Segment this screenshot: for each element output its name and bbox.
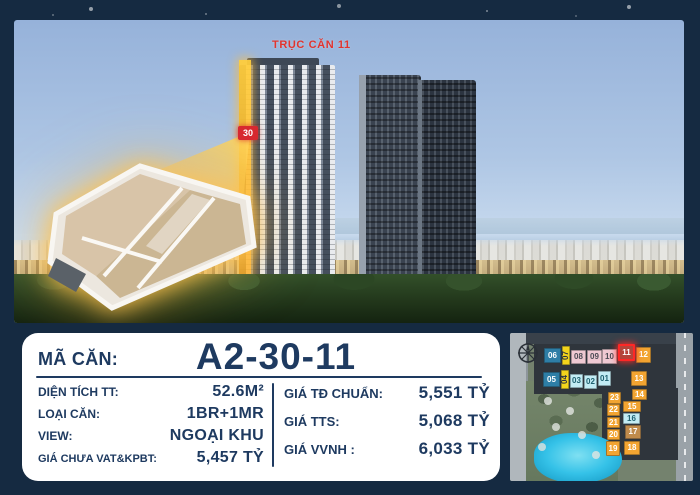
night-sky-stars: [0, 0, 2, 2]
map-unit-01: 01: [598, 371, 611, 386]
map-unit-14: 14: [632, 389, 647, 400]
vertical-divider: [272, 383, 274, 467]
spec-row-price-novat: GIÁ CHƯA VAT&KPBT: 5,457 TỶ: [38, 449, 264, 471]
map-unit-17: 17: [625, 425, 641, 439]
road-right: [676, 333, 693, 481]
price-novat-value: 5,457 TỶ: [197, 449, 264, 467]
price-row-standard: GIÁ TĐ CHUẨN: 5,551 TỶ: [284, 383, 490, 411]
map-unit-18: 18: [624, 441, 640, 455]
building-photo: 30 TRỤC CĂN 11: [14, 20, 684, 323]
area-value: 52.6M²: [212, 383, 264, 401]
unit-axis-label: TRỤC CĂN 11: [272, 39, 351, 51]
map-unit-10: 10: [602, 349, 617, 364]
map-unit-06: 06: [544, 348, 561, 363]
price-vvnh-value: 6,033 TỶ: [419, 439, 490, 459]
map-unit-04: 04: [561, 370, 569, 389]
map-unit-03: 03: [570, 374, 583, 388]
map-unit-20: 20: [607, 429, 620, 440]
spec-row-view: VIEW: NGOẠI KHU: [38, 427, 264, 449]
card-body: DIỆN TÍCH TT: 52.6M² LOẠI CĂN: 1BR+1MR V…: [38, 380, 490, 473]
map-unit-08: 08: [571, 350, 586, 364]
price-tts-value: 5,068 TỶ: [419, 411, 490, 431]
map-unit-23: 23: [608, 392, 621, 404]
price-novat-label: GIÁ CHƯA VAT&KPBT:: [38, 453, 157, 465]
map-unit-21: 21: [607, 417, 620, 428]
specs-column: DIỆN TÍCH TT: 52.6M² LOẠI CĂN: 1BR+1MR V…: [38, 380, 264, 473]
price-standard-value: 5,551 TỶ: [419, 383, 490, 403]
map-unit-07: 07: [562, 346, 570, 365]
site-map: 0607080910111205040302011314232215162117…: [510, 333, 693, 481]
spec-row-area: DIỆN TÍCH TT: 52.6M²: [38, 383, 264, 405]
map-unit-11: 11: [618, 344, 635, 361]
card-header: MÃ CĂN: A2-30-11: [38, 339, 484, 375]
map-unit-15: 15: [623, 401, 641, 412]
map-unit-19: 19: [606, 441, 620, 456]
amenity-markers: [510, 333, 514, 337]
type-value: 1BR+1MR: [187, 405, 264, 423]
area-label: DIỆN TÍCH TT:: [38, 385, 119, 399]
floor-30-badge: 30: [238, 126, 258, 140]
road-top: [526, 333, 676, 344]
map-unit-12: 12: [636, 347, 651, 363]
price-standard-label: GIÁ TĐ CHUẨN:: [284, 386, 383, 401]
floorplan-and-beam-overlay: [14, 20, 684, 323]
map-unit-09: 09: [587, 350, 602, 364]
type-label: LOẠI CĂN:: [38, 407, 100, 421]
price-row-tts: GIÁ TTS: 5,068 TỶ: [284, 411, 490, 439]
map-unit-02: 02: [584, 375, 597, 389]
price-vvnh-label: GIÁ VVNH :: [284, 442, 355, 457]
view-label: VIEW:: [38, 429, 72, 443]
price-row-vvnh: GIÁ VVNH : 6,033 TỶ: [284, 439, 490, 467]
unit-code-value: A2-30-11: [156, 336, 396, 378]
compass-icon: [516, 341, 540, 365]
map-unit-16: 16: [623, 413, 640, 424]
price-tts-label: GIÁ TTS:: [284, 414, 340, 429]
map-unit-05: 05: [543, 372, 560, 387]
unit-code-label: MÃ CĂN:: [38, 349, 118, 370]
unit-info-card: MÃ CĂN: A2-30-11 DIỆN TÍCH TT: 52.6M² LO…: [22, 333, 500, 481]
map-unit-22: 22: [607, 404, 620, 416]
view-value: NGOẠI KHU: [170, 427, 264, 445]
horizontal-divider: [36, 376, 482, 378]
map-unit-13: 13: [631, 371, 647, 386]
prices-column: GIÁ TĐ CHUẨN: 5,551 TỶ GIÁ TTS: 5,068 TỶ…: [284, 380, 490, 473]
spec-row-type: LOẠI CĂN: 1BR+1MR: [38, 405, 264, 427]
